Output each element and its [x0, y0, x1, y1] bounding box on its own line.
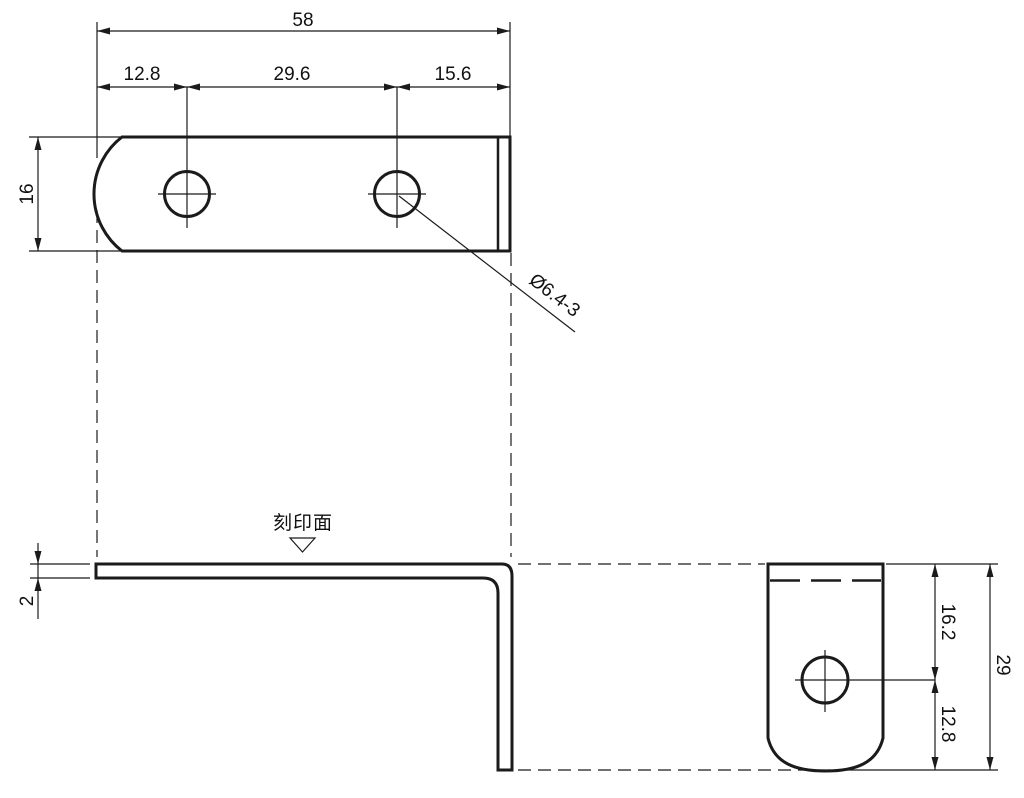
dim-16-2-arrow-top: [932, 564, 939, 577]
dim-16-2-label: 16.2: [937, 604, 958, 641]
marking-surface-triangle-icon: [290, 538, 315, 552]
marking-surface-label: 刻印面: [273, 512, 333, 534]
dim-15-6-label: 15.6: [435, 64, 472, 85]
dim-16-label: 16: [17, 183, 38, 204]
drawing-canvas: 58 12.8 29.6 15.6 16 Ø6.4-3: [0, 0, 1024, 798]
dim-29-6-label: 29.6: [274, 64, 311, 85]
top-view: 58 12.8 29.6 15.6 16 Ø6.4-3: [17, 10, 584, 332]
dim-12-8-label: 12.8: [124, 64, 161, 85]
hole-callout-label: Ø6.4-3: [525, 270, 584, 322]
front-view-profile-outline: [96, 564, 512, 770]
dim-2-arrow-bottom: [35, 578, 42, 591]
dim-58-arrow-right: [497, 28, 510, 35]
dim-29-arrow-bottom: [987, 757, 994, 770]
dim-12-8-side-label: 12.8: [937, 706, 958, 743]
front-view: 2 刻印面: [17, 512, 512, 770]
bracket-drawing-svg: 58 12.8 29.6 15.6 16 Ø6.4-3: [0, 0, 1024, 798]
dim-58-label: 58: [292, 10, 313, 31]
dim-16-arrow-bottom: [35, 238, 42, 251]
projection-lines: [97, 210, 840, 770]
dim-2-label: 2: [17, 596, 38, 607]
dim-segments-arrow-right: [497, 84, 510, 91]
dim-16-arrow-top: [35, 137, 42, 150]
dim-29-label: 29: [992, 654, 1013, 675]
hole-callout-leader: [399, 196, 575, 332]
dim-58-arrow-left: [97, 28, 110, 35]
side-view: 16.2 12.8 29: [768, 564, 1013, 771]
dim-2-arrow-top: [35, 551, 42, 564]
dim-segments-arrow-left: [97, 84, 110, 91]
dim-12-8-arrow-bottom: [932, 757, 939, 770]
dim-29-arrow-top: [987, 564, 994, 577]
